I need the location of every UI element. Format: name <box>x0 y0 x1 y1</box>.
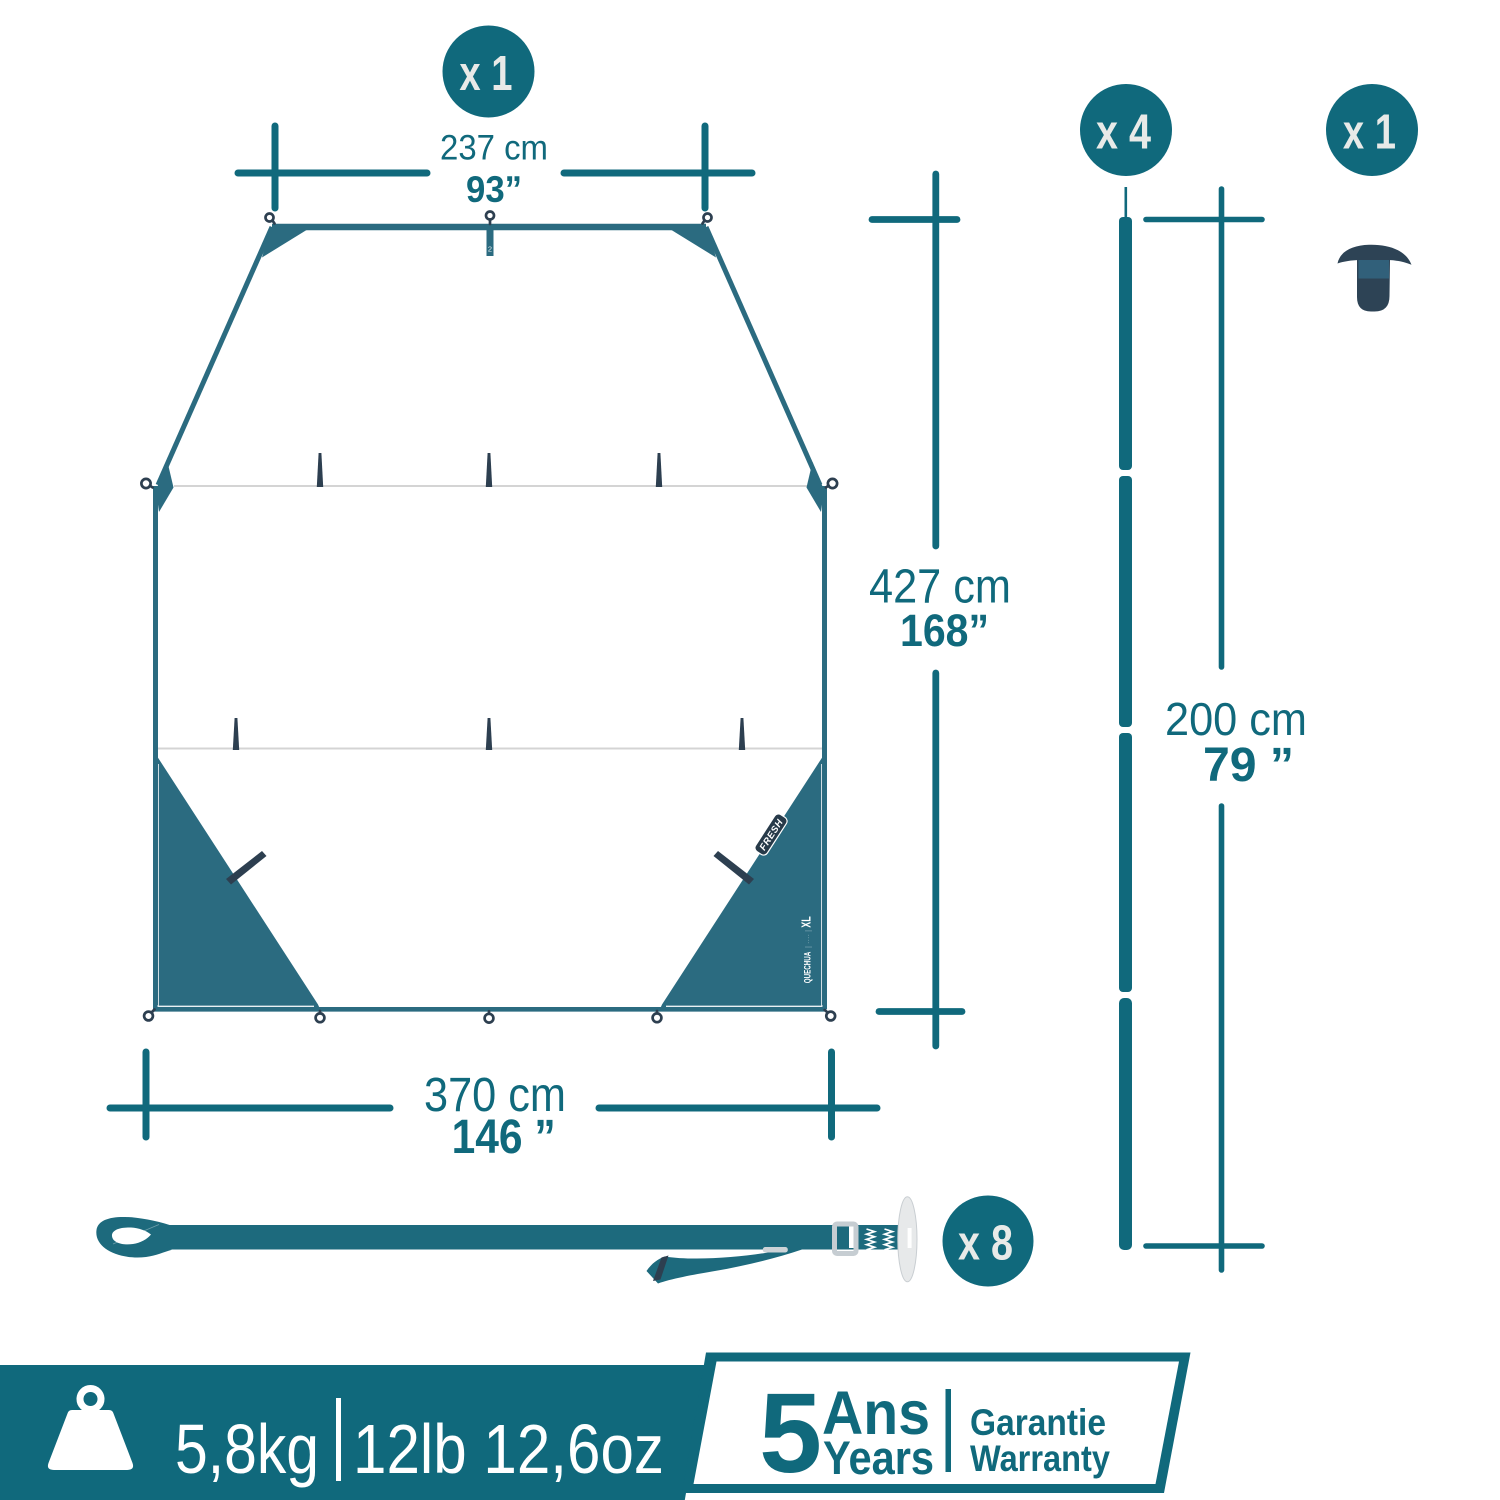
svg-text:12lb 12,6oz: 12lb 12,6oz <box>353 1410 664 1488</box>
svg-text:x 8: x 8 <box>958 1217 1013 1271</box>
svg-text:x 1: x 1 <box>1343 105 1396 160</box>
svg-text:| ···· |: | ···· | <box>804 930 813 948</box>
svg-text:5: 5 <box>759 1370 822 1496</box>
svg-text:146 ”: 146 ” <box>452 1109 556 1163</box>
svg-text:XL: XL <box>800 916 814 928</box>
svg-text:x 1: x 1 <box>459 47 512 102</box>
svg-text:Years: Years <box>823 1433 934 1485</box>
svg-text:237 cm: 237 cm <box>440 129 548 168</box>
svg-text:2: 2 <box>488 245 492 254</box>
svg-text:Warranty: Warranty <box>970 1438 1110 1479</box>
svg-text:QUECHUA: QUECHUA <box>802 951 812 983</box>
svg-text:x 4: x 4 <box>1096 106 1151 160</box>
svg-text:5,8kg: 5,8kg <box>175 1409 319 1488</box>
svg-text:79 ”: 79 ” <box>1203 738 1294 792</box>
svg-text:427 cm: 427 cm <box>869 558 1011 613</box>
svg-text:168”: 168” <box>900 606 989 656</box>
svg-text:93”: 93” <box>466 169 522 210</box>
